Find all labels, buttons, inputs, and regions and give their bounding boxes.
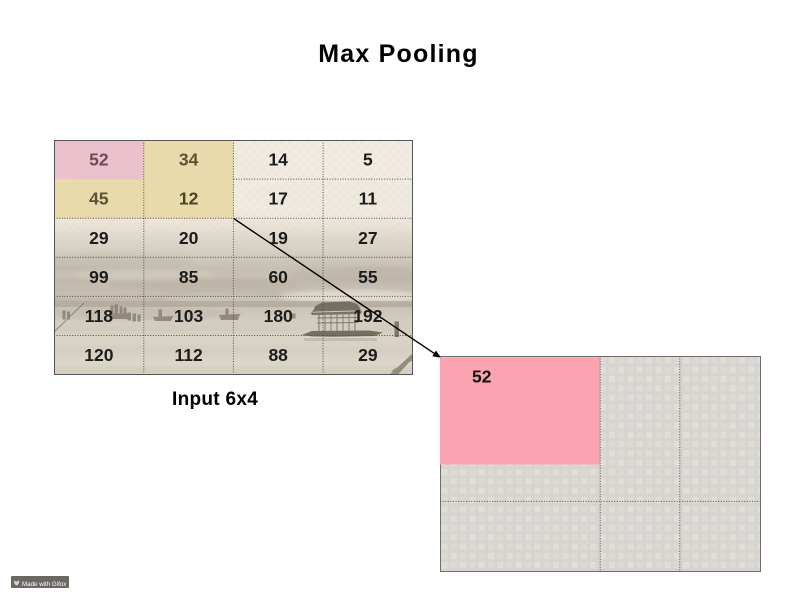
svg-text:45: 45: [89, 189, 109, 209]
svg-text:17: 17: [268, 189, 287, 209]
svg-text:99: 99: [89, 267, 109, 287]
svg-text:180: 180: [264, 306, 293, 326]
svg-text:14: 14: [268, 150, 288, 170]
svg-text:112: 112: [174, 345, 202, 365]
svg-text:12: 12: [179, 189, 199, 209]
svg-text:34: 34: [179, 150, 199, 170]
svg-text:29: 29: [89, 228, 109, 248]
svg-text:55: 55: [358, 267, 378, 287]
svg-text:103: 103: [174, 306, 203, 326]
svg-text:19: 19: [268, 228, 288, 248]
svg-text:52: 52: [89, 150, 109, 170]
svg-text:5: 5: [363, 150, 373, 170]
svg-text:192: 192: [353, 306, 382, 326]
svg-text:118: 118: [85, 306, 113, 326]
svg-text:120: 120: [84, 345, 113, 365]
svg-text:27: 27: [358, 228, 377, 248]
svg-text:88: 88: [268, 345, 288, 365]
svg-text:Made with Gifox: Made with Gifox: [22, 581, 67, 588]
svg-text:11: 11: [359, 189, 378, 209]
svg-text:52: 52: [472, 367, 492, 387]
svg-text:85: 85: [179, 267, 199, 287]
svg-text:60: 60: [268, 267, 288, 287]
svg-text:29: 29: [358, 345, 378, 365]
svg-text:20: 20: [179, 228, 199, 248]
